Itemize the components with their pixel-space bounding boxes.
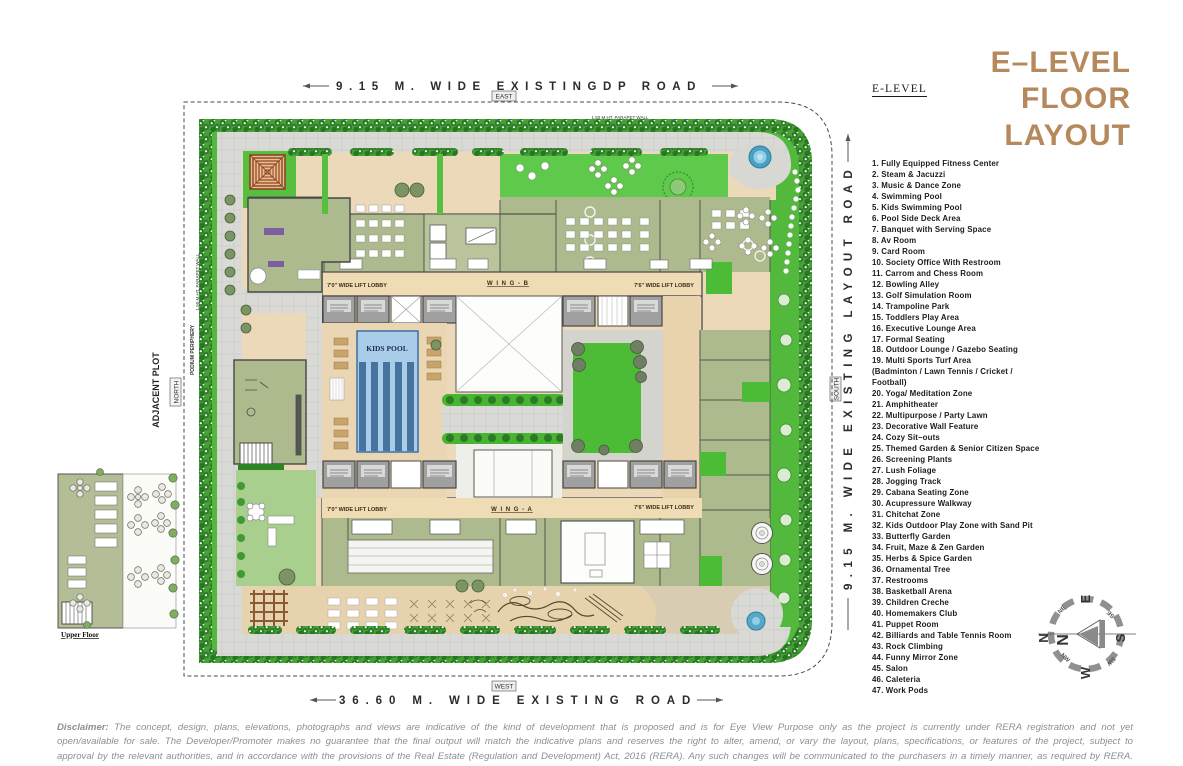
svg-text:Upper Floor: Upper Floor [61, 631, 100, 639]
svg-text:7'0" WIDE LIFT LOBBY: 7'0" WIDE LIFT LOBBY [327, 283, 387, 289]
svg-text:ADJACENT PLOT: ADJACENT PLOT [151, 352, 161, 428]
svg-text:PODIUM PERIPHERY: PODIUM PERIPHERY [190, 324, 196, 375]
svg-text:7'0" WIDE LIFT LOBBY: 7'0" WIDE LIFT LOBBY [327, 507, 387, 513]
svg-text:KIDS POOL: KIDS POOL [366, 344, 407, 353]
svg-text:W: W [1078, 666, 1093, 679]
svg-text:SOUTH: SOUTH [834, 377, 841, 400]
svg-text:WEST: WEST [495, 684, 514, 691]
svg-text:E: E [1078, 594, 1093, 603]
svg-text:S: S [1113, 633, 1128, 642]
svg-text:7'6" WIDE LIFT LOBBY: 7'6" WIDE LIFT LOBBY [634, 505, 694, 511]
svg-text:9.15 M. WIDE EXISTINGDP ROAD: 9.15 M. WIDE EXISTINGDP ROAD [336, 81, 702, 93]
svg-text:W I N G - B: W I N G - B [487, 281, 529, 287]
svg-text:NORTH: NORTH [174, 380, 181, 403]
svg-text:N: N [1055, 634, 1072, 646]
svg-text:36.60 M. WIDE EXISTING ROAD: 36.60 M. WIDE EXISTING ROAD [339, 695, 697, 707]
svg-text:9.15 M. WIDE EXISTING LAYOUT R: 9.15 M. WIDE EXISTING LAYOUT ROAD [843, 164, 855, 590]
svg-text:EAST: EAST [496, 94, 513, 101]
svg-text:SW: SW [1105, 655, 1116, 666]
svg-text:7'6" WIDE LIFT LOBBY: 7'6" WIDE LIFT LOBBY [634, 283, 694, 289]
svg-text:W I N G - A: W I N G - A [491, 507, 533, 513]
